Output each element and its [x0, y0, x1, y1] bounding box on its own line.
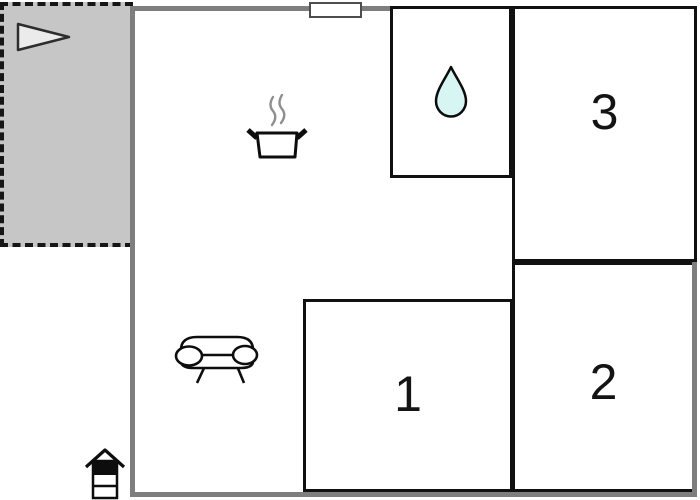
room-2-label: 2 [590, 357, 618, 407]
terrace-area [0, 2, 133, 247]
grill-icon [84, 446, 126, 500]
floor-plan: 3 2 1 [0, 0, 700, 500]
water-drop-icon [432, 64, 470, 120]
sofa-icon [173, 328, 261, 386]
steam-icon [271, 95, 285, 125]
cooking-pot-icon [243, 93, 311, 161]
room-1: 1 [303, 299, 513, 492]
door-marker [309, 2, 362, 18]
flag-icon [15, 21, 73, 53]
room-2: 2 [512, 262, 692, 492]
room-1-label: 1 [394, 369, 422, 419]
room-3-label: 3 [591, 87, 619, 137]
room-bathroom [390, 6, 512, 178]
room-3: 3 [512, 6, 697, 262]
